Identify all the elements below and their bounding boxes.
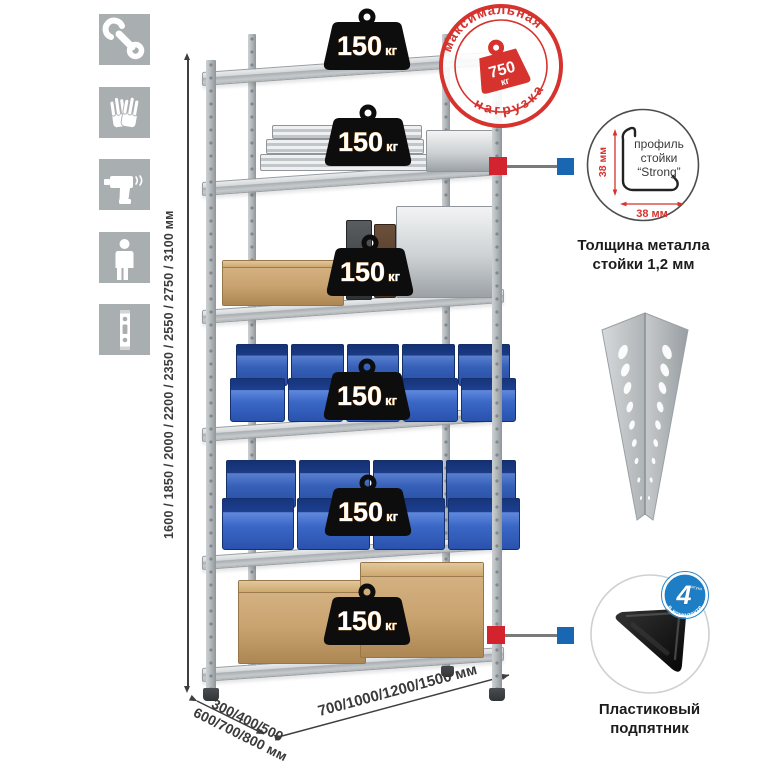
connector-blue-square (557, 158, 574, 175)
product-infographic: 1600 / 1850 / 2000 / 2200 / 2350 / 2550 … (0, 0, 765, 765)
wrench-icon (99, 14, 150, 65)
callout-connector-line (504, 634, 559, 637)
rack-post-front-right (492, 60, 502, 700)
connector-red-square (487, 626, 505, 644)
svg-text:4: 4 (675, 580, 691, 610)
shelf-load-badge: 150кг (323, 474, 413, 538)
gloves-icon (99, 87, 150, 138)
rack-foot (441, 666, 454, 677)
profile-labels: профиль стойки “Strong” (634, 137, 684, 179)
profile-callout-circle: 38 мм 38 мм профиль стойки “Strong” (585, 107, 701, 223)
rack-post-front-left (206, 60, 216, 700)
rack-foot (203, 688, 219, 701)
shelf-load-badge: 150кг (325, 234, 415, 298)
plastic-foot-caption: Пластиковый подпятник (572, 701, 727, 739)
callout-connector-line (506, 165, 560, 168)
height-dimension-line (187, 57, 189, 689)
svg-text:стойки: стойки (641, 151, 678, 165)
kit-count-badge: 4 штуки в комплекте (660, 570, 710, 620)
svg-text:38 мм: 38 мм (597, 147, 609, 177)
connector-red-square (489, 157, 507, 175)
blue-bin (222, 498, 294, 550)
svg-text:38 мм: 38 мм (636, 208, 668, 220)
shelf-load-badge: 150кг (322, 358, 412, 422)
profile-caption: Толщина металла стойки 1,2 мм (566, 237, 721, 275)
blue-bin (448, 498, 520, 550)
blue-bin (230, 378, 285, 422)
drill-icon (99, 159, 150, 210)
shelf-load-badge: 150кг (322, 583, 412, 647)
shelf-load-badge: 150кг (322, 8, 412, 72)
blue-bin (461, 378, 516, 422)
connector-blue-square (557, 627, 574, 644)
svg-text:профиль: профиль (634, 137, 684, 151)
shelf-load-badge: 150кг (323, 104, 413, 168)
height-dimension-label: 1600 / 1850 / 2000 / 2200 / 2350 / 2550 … (156, 205, 182, 545)
person-icon (99, 232, 150, 283)
rack-foot (489, 688, 505, 701)
svg-text:“Strong”: “Strong” (637, 165, 680, 179)
upright-post-icon (99, 304, 150, 355)
angle-post-image (597, 310, 693, 528)
